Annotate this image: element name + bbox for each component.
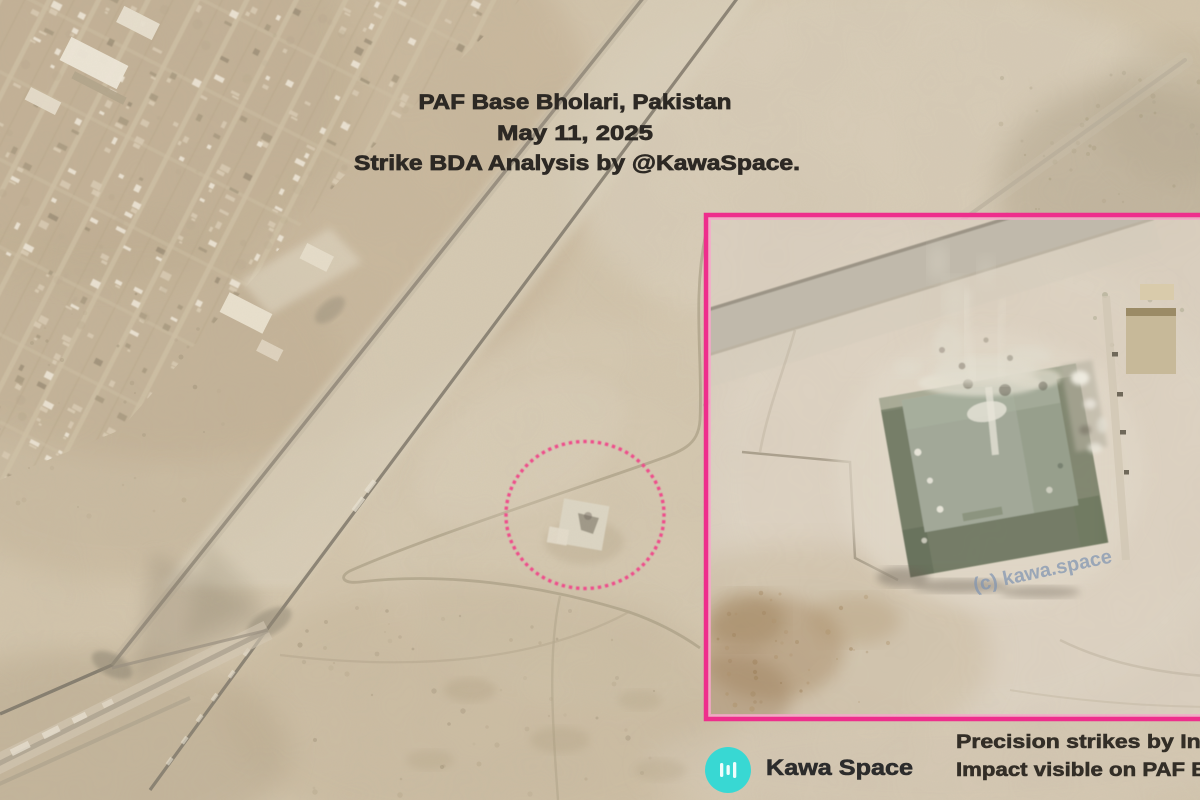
- svg-text:Kawa Space: Kawa Space: [766, 755, 913, 780]
- svg-text:Impact visible on PAF Bas: Impact visible on PAF Bas: [956, 759, 1200, 781]
- svg-text:PAF Base Bholari, Pakistan: PAF Base Bholari, Pakistan: [419, 91, 732, 114]
- svg-text:Strike BDA Analysis by @KawaSp: Strike BDA Analysis by @KawaSpace.: [354, 152, 800, 175]
- svg-text:Precision strikes by India: Precision strikes by India: [956, 731, 1200, 753]
- svg-text:May 11, 2025: May 11, 2025: [497, 122, 653, 145]
